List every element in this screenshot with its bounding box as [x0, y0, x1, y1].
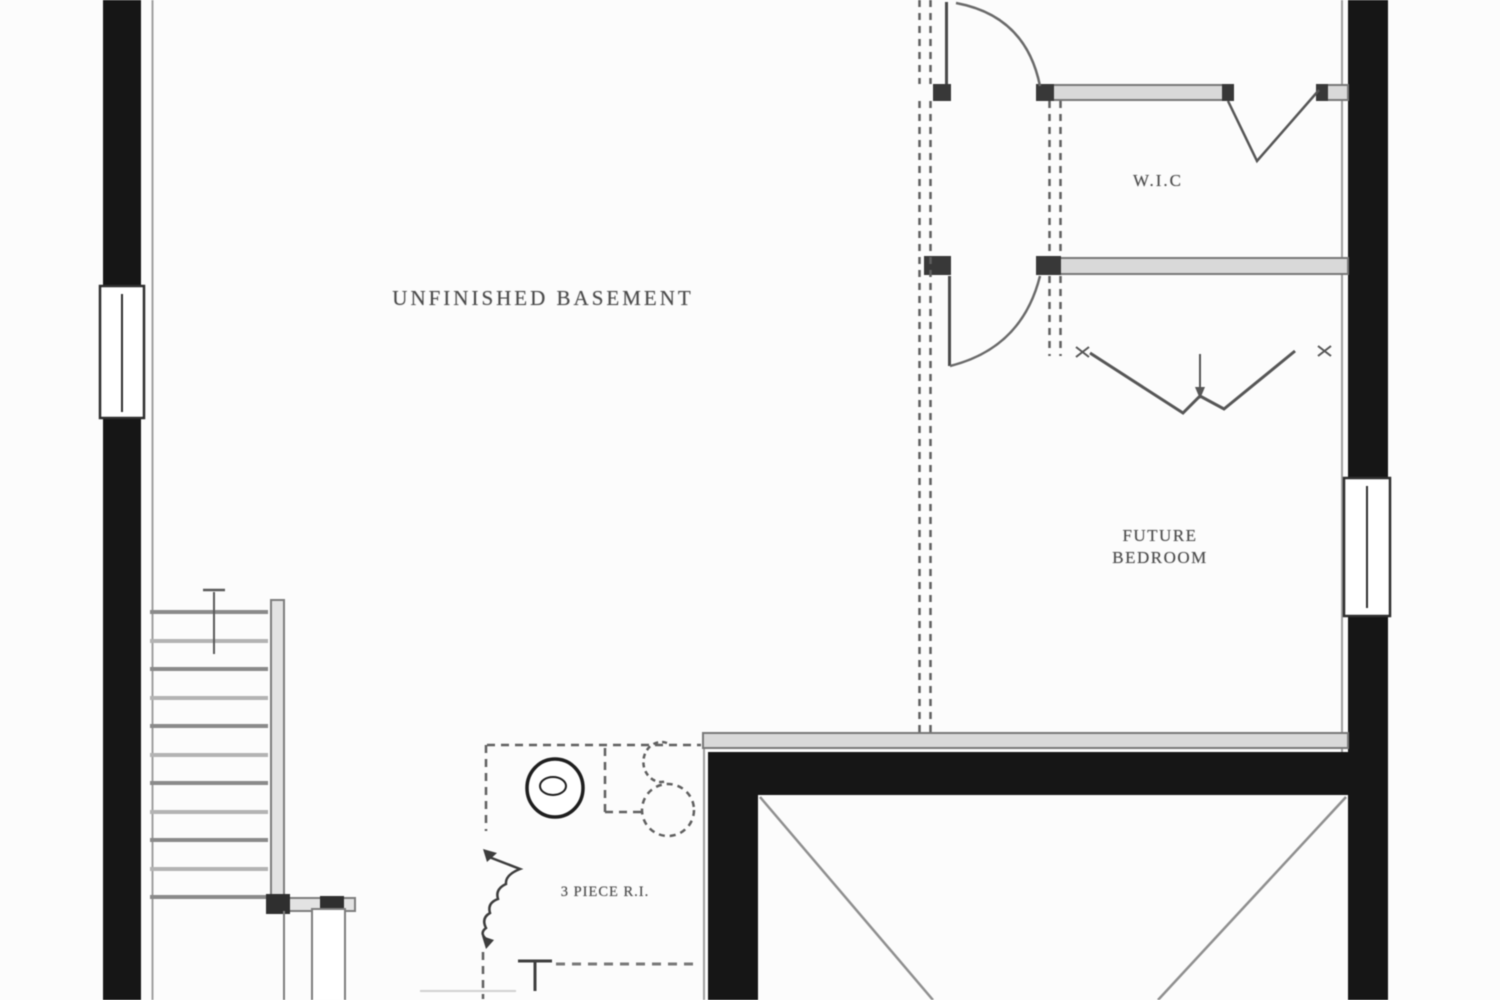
unexcavated-area [704, 737, 1388, 1000]
room-label-bath-rough-in: 3 PIECE R.I. [545, 884, 665, 901]
room-label-wic: W.I.C [1098, 171, 1218, 191]
interior-walls [703, 85, 1348, 748]
unexcavated-x-bracing [760, 797, 1346, 1000]
stair-treads [150, 612, 268, 897]
room-label-future-bedroom: FUTURE BEDROOM [1075, 525, 1245, 569]
zigzag-beam-symbol [1076, 346, 1331, 413]
room-label-unfinished-basement: UNFINISHED BASEMENT [343, 286, 743, 311]
window-right-icon [1344, 478, 1390, 616]
floor-plan-linework [0, 0, 1500, 1000]
floor-plan-drawing: UNFINISHED BASEMENT W.I.C FUTURE BEDROOM… [0, 0, 1500, 1000]
future-wall-dashed [920, 0, 1061, 733]
toilet-rough-in-icon [527, 759, 583, 817]
exterior-wall-left [103, 0, 153, 1000]
sink-rough-in-icon [643, 742, 667, 782]
basement-floor-plan: UNFINISHED BASEMENT W.I.C FUTURE BEDROOM… [0, 0, 1500, 1000]
stairs [150, 590, 355, 1000]
shower-rough-in-icon [420, 961, 700, 991]
future-bedroom-line1: FUTURE [1122, 526, 1197, 545]
stair-direction-arrow [203, 590, 225, 654]
door-swing-top-icon [947, 2, 1041, 86]
floor-drain-icon [642, 784, 694, 836]
bath-rough-in-area [420, 742, 701, 999]
bifold-door-wic-icon [1228, 90, 1319, 161]
future-bedroom-line2: BEDROOM [1112, 548, 1208, 567]
window-left-icon [100, 286, 144, 418]
plumbing-squiggle [482, 849, 520, 949]
door-swing-bedroom-icon [950, 276, 1041, 366]
